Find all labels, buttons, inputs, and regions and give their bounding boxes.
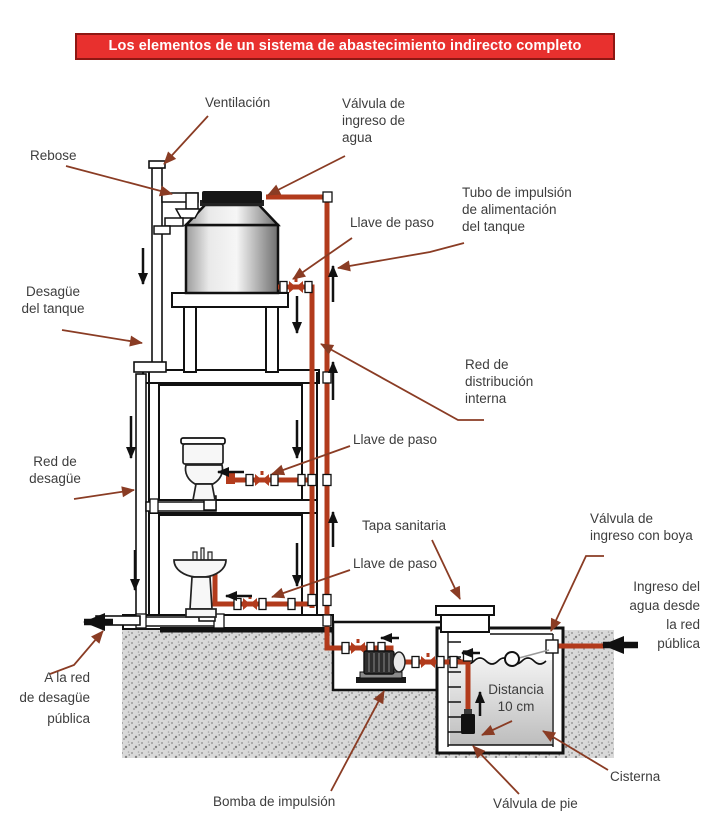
label-valvula-ingreso-agua: Válvula de ingreso de agua [342, 95, 405, 146]
toilet [181, 438, 225, 500]
label-valvula-ingreso-boya: Válvula de ingreso con boya [590, 510, 693, 544]
label-desague-tanque: Desagüe del tanque [15, 283, 91, 317]
tank-platform [172, 293, 288, 372]
label-ventilacion: Ventilación [205, 94, 270, 111]
pipe-fittings [234, 192, 558, 668]
roof-slab [143, 370, 319, 383]
label-tapa-sanitaria: Tapa sanitaria [362, 517, 446, 534]
label-llave-de-paso-superior: Llave de paso [350, 214, 434, 231]
diagram-stage: Los elementos de un sistema de abastecim… [0, 0, 720, 832]
drain-stack [136, 374, 146, 617]
vent-stack [152, 168, 162, 364]
sink [174, 548, 226, 617]
label-red-distribucion: Red de distribución interna [465, 356, 533, 407]
diagram-title: Los elementos de un sistema de abastecim… [75, 33, 615, 60]
vent-cap [149, 161, 165, 168]
label-ingreso-agua-red-publica: Ingreso del agua desde la red pública [600, 578, 700, 654]
sanitary-lid [436, 606, 494, 615]
label-rebose: Rebose [30, 147, 77, 164]
distribution-pipe [278, 287, 312, 608]
label-a-red-desague-publica: A la red de desagüe pública [5, 668, 90, 729]
water-tank [186, 191, 278, 293]
label-llave-de-paso-medio: Llave de paso [353, 431, 437, 448]
label-red-desague: Red de desagüe [15, 453, 95, 487]
impulsion-pump [356, 651, 406, 683]
label-bomba-impulsion: Bomba de impulsión [213, 793, 335, 810]
label-valvula-de-pie: Válvula de pie [493, 795, 578, 812]
label-llave-de-paso-inferior: Llave de paso [353, 555, 437, 572]
label-cisterna: Cisterna [610, 768, 660, 785]
impulsion-pipe [266, 197, 391, 656]
label-tubo-impulsion: Tubo de impulsión de alimentación del ta… [462, 184, 572, 235]
float-ball [505, 652, 519, 666]
label-distancia: Distancia 10 cm [478, 681, 554, 715]
